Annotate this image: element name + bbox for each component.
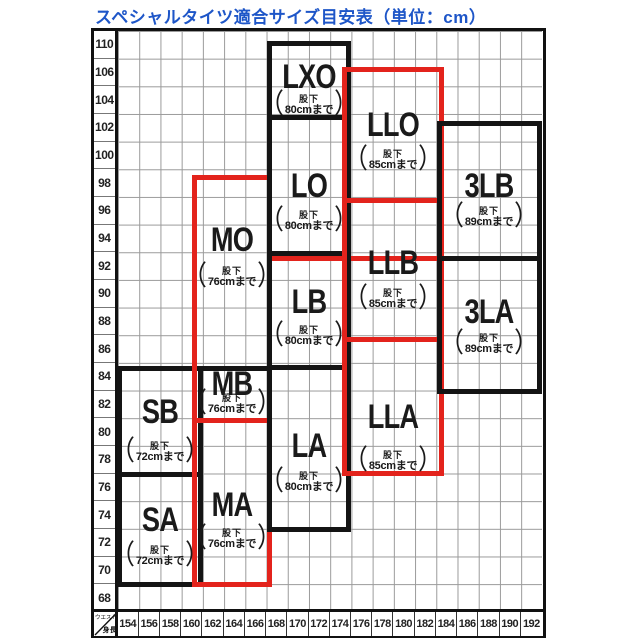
inseam-word: 股下 [299,471,319,481]
size-label-3LB: 3LB [441,170,537,202]
inseam-word: 股下 [222,528,242,538]
x-tick-176: 176 [351,612,372,636]
y-tick-84: 84 [94,363,115,391]
paren-open: （ [440,203,464,231]
inseam-value: 85cmまで [369,298,417,310]
size-inseam-LLO: （股下85cmまで） [338,147,448,173]
size-chart-page: スペシャルタイツ適合サイズ目安表（単位：cm） 1101061041021009… [0,0,638,638]
inseam-value: 72cmまで [136,555,184,567]
x-tick-172: 172 [309,612,330,636]
x-tick-174: 174 [330,612,351,636]
x-tick-164: 164 [224,612,245,636]
inseam-value: 85cmまで [369,159,417,171]
y-tick-90: 90 [94,280,115,308]
axis-corner-cell: ウエスト 身長 [94,612,118,636]
size-label-LLB: LLB [345,247,441,279]
inseam-text: 股下80cmまで [285,210,333,232]
y-tick-104: 104 [94,86,115,114]
size-inseam-3LB: （股下89cmまで） [434,204,544,230]
y-axis-label: ウエスト [95,613,117,621]
size-inseam-LB: （股下80cmまで） [254,323,364,349]
inseam-value: 76cmまで [208,538,256,550]
paren-open: （ [260,322,284,350]
inseam-value: 72cmまで [136,451,184,463]
inseam-word: 股下 [383,149,403,159]
inseam-value: 80cmまで [285,481,333,493]
inseam-value: 80cmまで [285,104,333,116]
paren-open: （ [111,438,135,466]
paren-open: （ [344,447,368,475]
inseam-word: 股下 [150,545,170,555]
y-tick-106: 106 [94,59,115,87]
inseam-text: 股下85cmまで [369,149,417,171]
size-label-3LA: 3LA [441,296,537,328]
paren-close: ） [418,146,442,174]
x-tick-178: 178 [372,612,393,636]
y-tick-86: 86 [94,335,115,363]
inseam-text: 股下89cmまで [465,333,513,355]
size-label-LO: LO [261,170,357,202]
x-tick-162: 162 [202,612,223,636]
size-inseam-LLA: （股下85cmまで） [338,448,448,474]
inseam-text: 股下76cmまで [208,528,256,550]
paren-open: （ [183,263,207,291]
paren-open: （ [344,146,368,174]
x-tick-154: 154 [118,612,139,636]
paren-open: （ [440,330,464,358]
inseam-word: 股下 [383,288,403,298]
inseam-text: 股下76cmまで [208,393,256,415]
y-tick-76: 76 [94,474,115,502]
paren-close: ） [257,390,281,418]
chart-title: スペシャルタイツ適合サイズ目安表（単位：cm） [95,3,486,28]
x-tick-180: 180 [393,612,414,636]
inseam-text: 股下85cmまで [369,450,417,472]
y-tick-68: 68 [94,584,115,612]
paren-open: （ [260,91,284,119]
y-tick-96: 96 [94,197,115,225]
size-inseam-SB: （股下72cmまで） [105,439,215,465]
inseam-value: 89cmまで [465,343,513,355]
x-tick-186: 186 [457,612,478,636]
size-region-divider-column-S [117,472,203,477]
paren-close: ） [334,322,358,350]
inseam-word: 股下 [150,441,170,451]
paren-close: ） [257,525,281,553]
size-inseam-LLB: （股下85cmまで） [338,286,448,312]
inseam-value: 76cmまで [208,276,256,288]
inseam-value: 89cmまで [465,216,513,228]
y-tick-94: 94 [94,225,115,253]
paren-open: （ [183,525,207,553]
y-tick-88: 88 [94,308,115,336]
inseam-word: 股下 [479,333,499,343]
inseam-text: 股下80cmまで [285,325,333,347]
x-tick-168: 168 [266,612,287,636]
paren-close: ） [418,285,442,313]
y-tick-98: 98 [94,169,115,197]
size-label-LLO: LLO [345,109,441,141]
inseam-word: 股下 [479,206,499,216]
size-region-divider-column-3L [437,256,542,261]
y-tick-102: 102 [94,114,115,142]
x-tick-158: 158 [160,612,181,636]
inseam-text: 股下80cmまで [285,471,333,493]
size-region-divider-column-LL [342,198,444,203]
paren-open: （ [344,285,368,313]
paren-close: ） [514,330,538,358]
inseam-text: 股下85cmまで [369,288,417,310]
x-tick-184: 184 [436,612,457,636]
x-tick-156: 156 [139,612,160,636]
paren-close: ） [514,203,538,231]
inseam-value: 76cmまで [208,403,256,415]
inseam-text: 股下89cmまで [465,206,513,228]
y-tick-100: 100 [94,142,115,170]
inseam-word: 股下 [299,210,319,220]
paren-open: （ [183,390,207,418]
size-inseam-LO: （股下80cmまで） [254,208,364,234]
inseam-text: 股下76cmまで [208,266,256,288]
paren-close: ） [418,447,442,475]
y-tick-92: 92 [94,252,115,280]
paren-open: （ [260,207,284,235]
size-inseam-MA: （股下76cmまで） [177,526,287,552]
x-axis-label: 身長 [103,625,117,635]
size-label-LLA: LLA [345,401,441,433]
paren-open: （ [111,542,135,570]
inseam-word: 股下 [222,266,242,276]
paren-open: （ [260,468,284,496]
inseam-value: 80cmまで [285,335,333,347]
x-tick-170: 170 [287,612,308,636]
x-tick-188: 188 [478,612,499,636]
x-tick-160: 160 [181,612,202,636]
inseam-value: 80cmまで [285,220,333,232]
x-tick-192: 192 [521,612,542,636]
inseam-text: 股下80cmまで [285,94,333,116]
inseam-word: 股下 [222,393,242,403]
y-tick-110: 110 [94,31,115,59]
size-inseam-3LA: （股下89cmまで） [434,331,544,357]
inseam-value: 85cmまで [369,460,417,472]
x-tick-166: 166 [245,612,266,636]
x-tick-182: 182 [415,612,436,636]
size-inseam-MB: （股下76cmまで） [177,391,287,417]
inseam-word: 股下 [299,94,319,104]
inseam-text: 股下72cmまで [136,441,184,463]
inseam-word: 股下 [299,325,319,335]
x-tick-190: 190 [500,612,521,636]
paren-close: ） [185,438,209,466]
paren-close: ） [334,207,358,235]
inseam-word: 股下 [383,450,403,460]
